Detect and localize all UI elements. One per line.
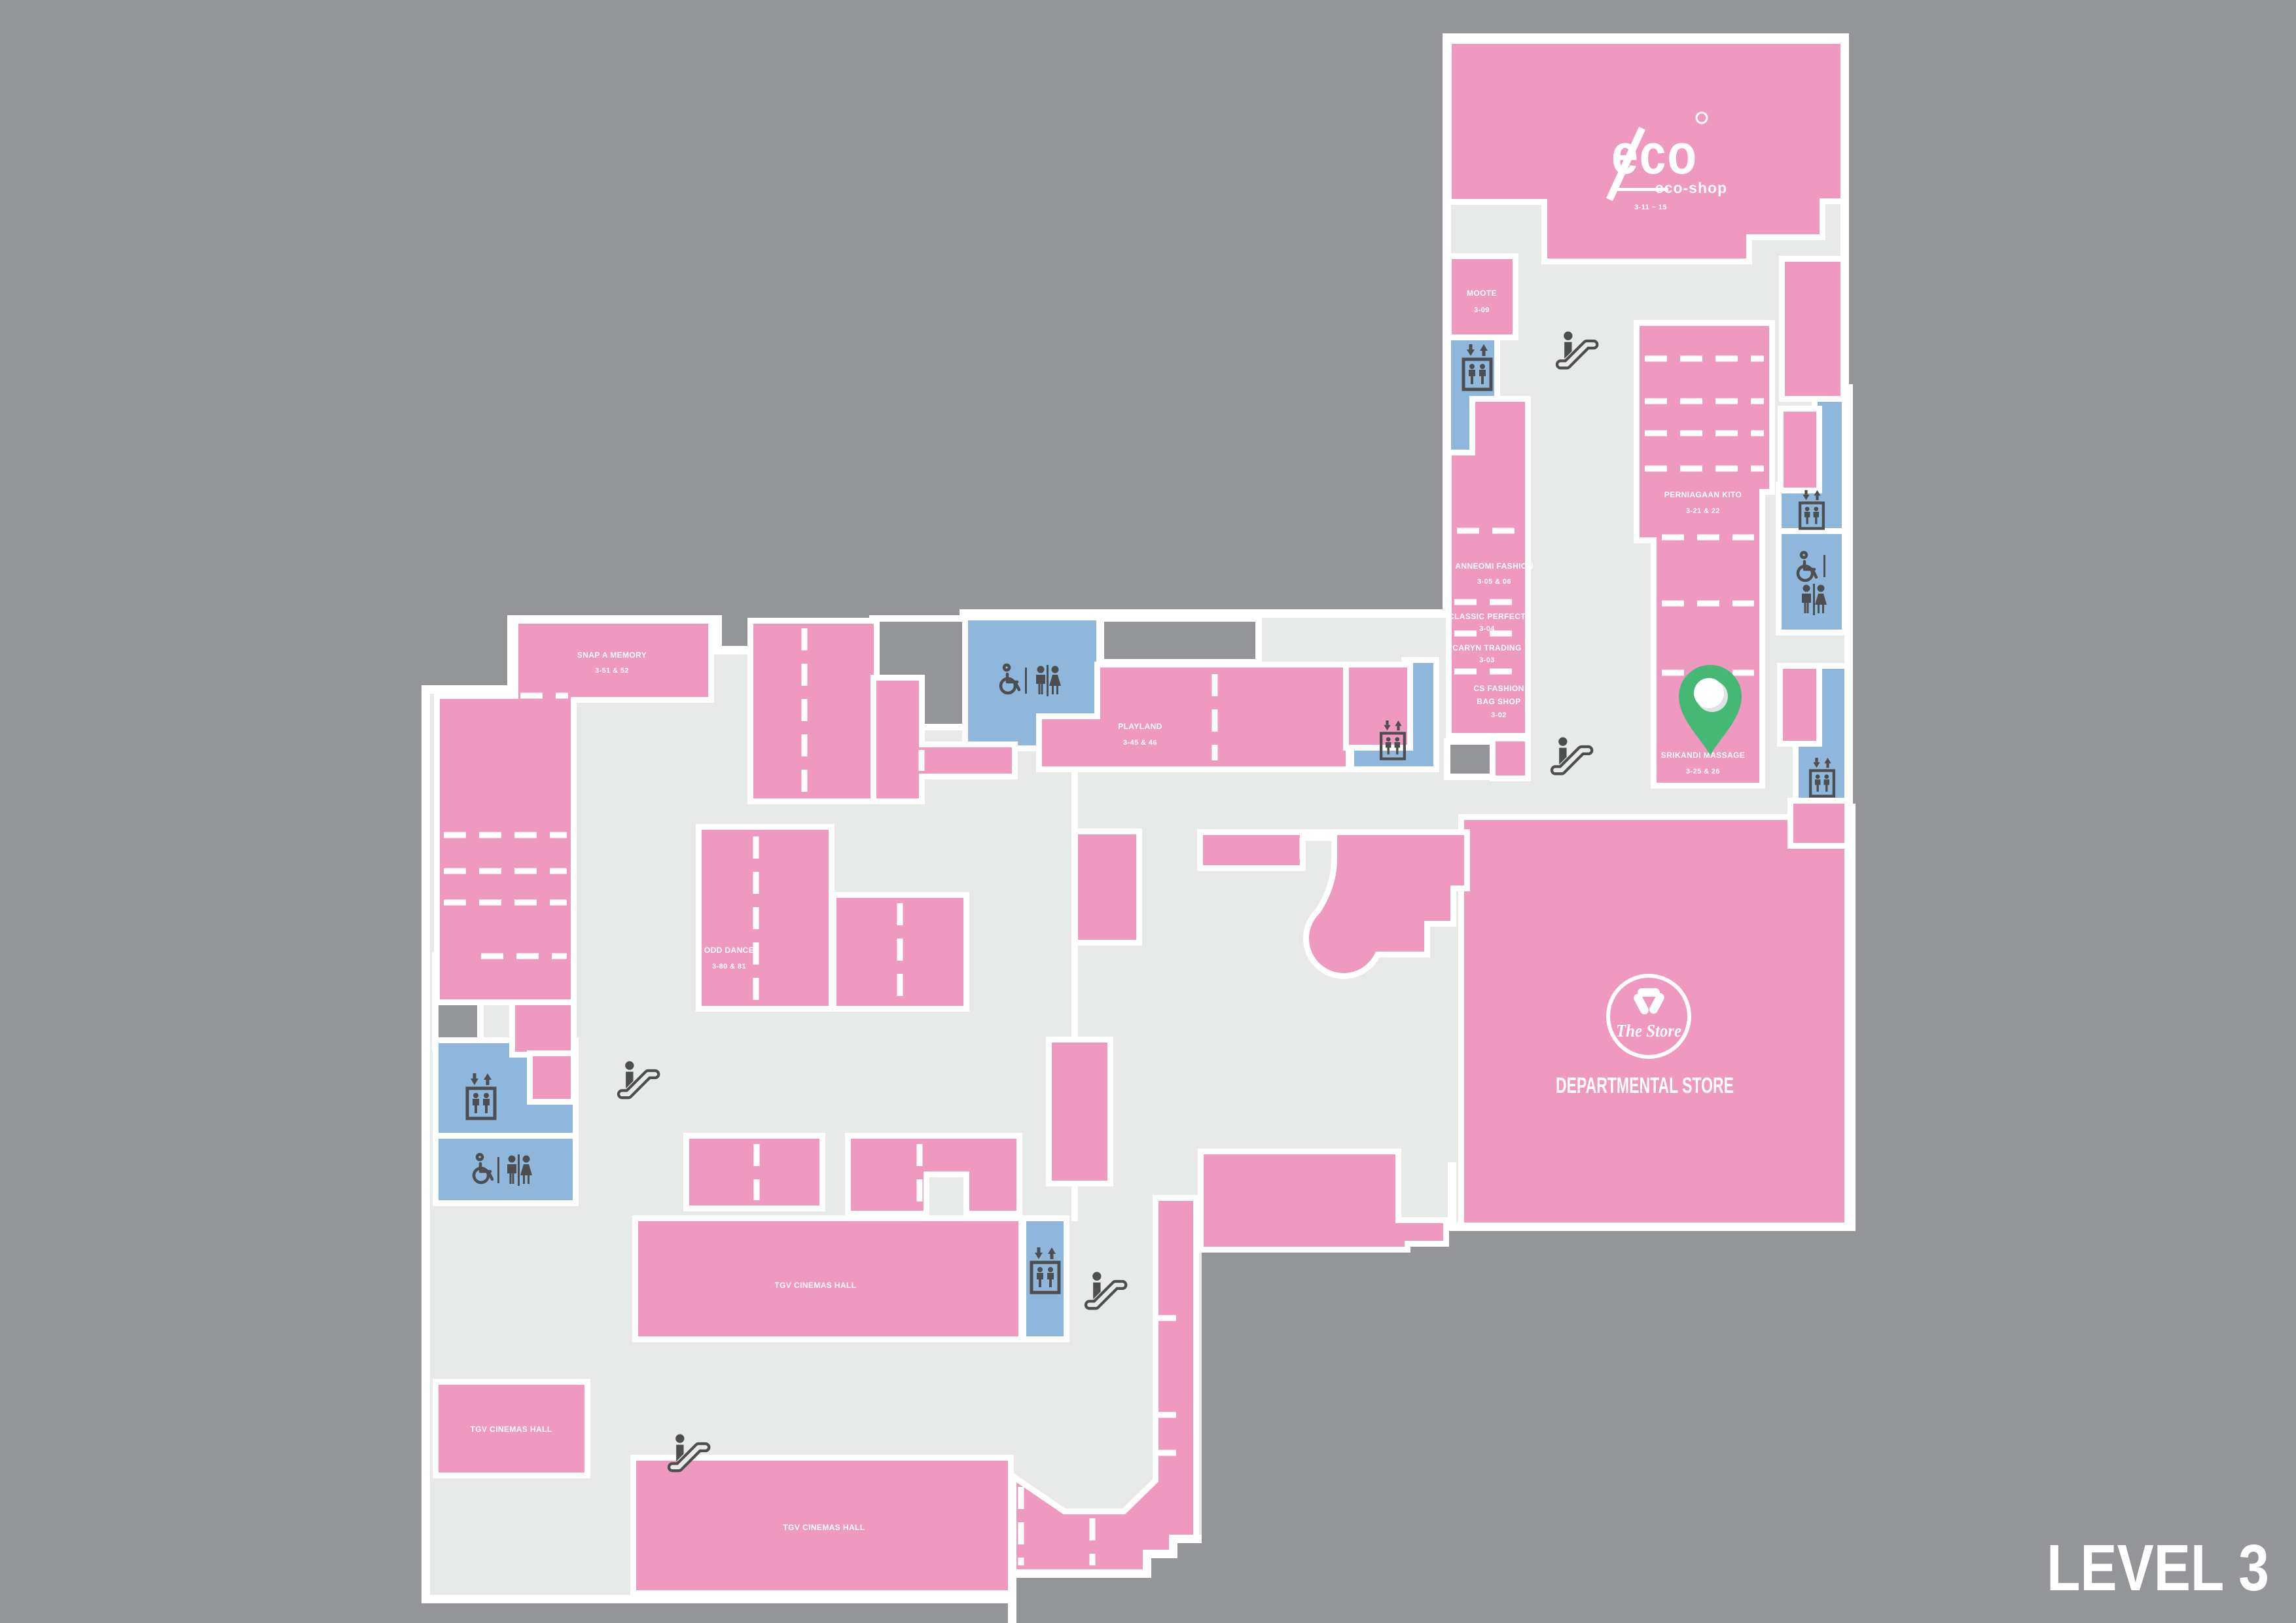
svg-text:ODD DANCE: ODD DANCE <box>704 946 754 955</box>
svg-text:3-80 & 81: 3-80 & 81 <box>712 963 746 971</box>
svg-text:3-21 & 22: 3-21 & 22 <box>1686 507 1720 515</box>
svg-text:PLAYLAND: PLAYLAND <box>1118 722 1162 731</box>
svg-text:SNAP A MEMORY: SNAP A MEMORY <box>577 651 647 660</box>
svg-text:eco: eco <box>1611 123 1698 186</box>
svg-text:3-03: 3-03 <box>1479 656 1495 664</box>
svg-text:TGV CINEMAS HALL: TGV CINEMAS HALL <box>783 1523 865 1532</box>
svg-text:MOOTE: MOOTE <box>1467 289 1497 298</box>
svg-text:3-09: 3-09 <box>1474 306 1490 314</box>
svg-text:DEPARTMENTAL STORE: DEPARTMENTAL STORE <box>1556 1073 1734 1098</box>
svg-text:SRIKANDI MASSAGE: SRIKANDI MASSAGE <box>1661 751 1745 760</box>
svg-text:3-51 & 52: 3-51 & 52 <box>595 667 629 675</box>
svg-text:3-05 & 06: 3-05 & 06 <box>1477 578 1511 586</box>
svg-text:LEVEL 3: LEVEL 3 <box>2047 1531 2269 1605</box>
svg-text:3-02: 3-02 <box>1491 711 1507 719</box>
svg-text:The Store: The Store <box>1616 1021 1681 1041</box>
svg-text:3-45 & 46: 3-45 & 46 <box>1123 739 1157 747</box>
svg-text:CLASSIC PERFECT: CLASSIC PERFECT <box>1448 612 1526 621</box>
svg-text:PERNIAGAAN KITO: PERNIAGAAN KITO <box>1664 490 1742 499</box>
svg-text:3-25 & 26: 3-25 & 26 <box>1686 768 1720 776</box>
svg-text:CS FASHION: CS FASHION <box>1473 684 1524 693</box>
svg-text:BAG SHOP: BAG SHOP <box>1477 697 1520 706</box>
svg-text:TGV CINEMAS HALL: TGV CINEMAS HALL <box>774 1281 856 1290</box>
svg-text:eco-shop: eco-shop <box>1655 179 1727 196</box>
svg-text:TGV CINEMAS HALL: TGV CINEMAS HALL <box>470 1425 552 1434</box>
svg-text:CARYN TRADING: CARYN TRADING <box>1452 643 1521 652</box>
svg-text:ANNEOMI FASHION: ANNEOMI FASHION <box>1455 562 1533 571</box>
svg-text:3-04: 3-04 <box>1479 625 1495 633</box>
svg-text:3-11 ~ 15: 3-11 ~ 15 <box>1634 204 1667 211</box>
